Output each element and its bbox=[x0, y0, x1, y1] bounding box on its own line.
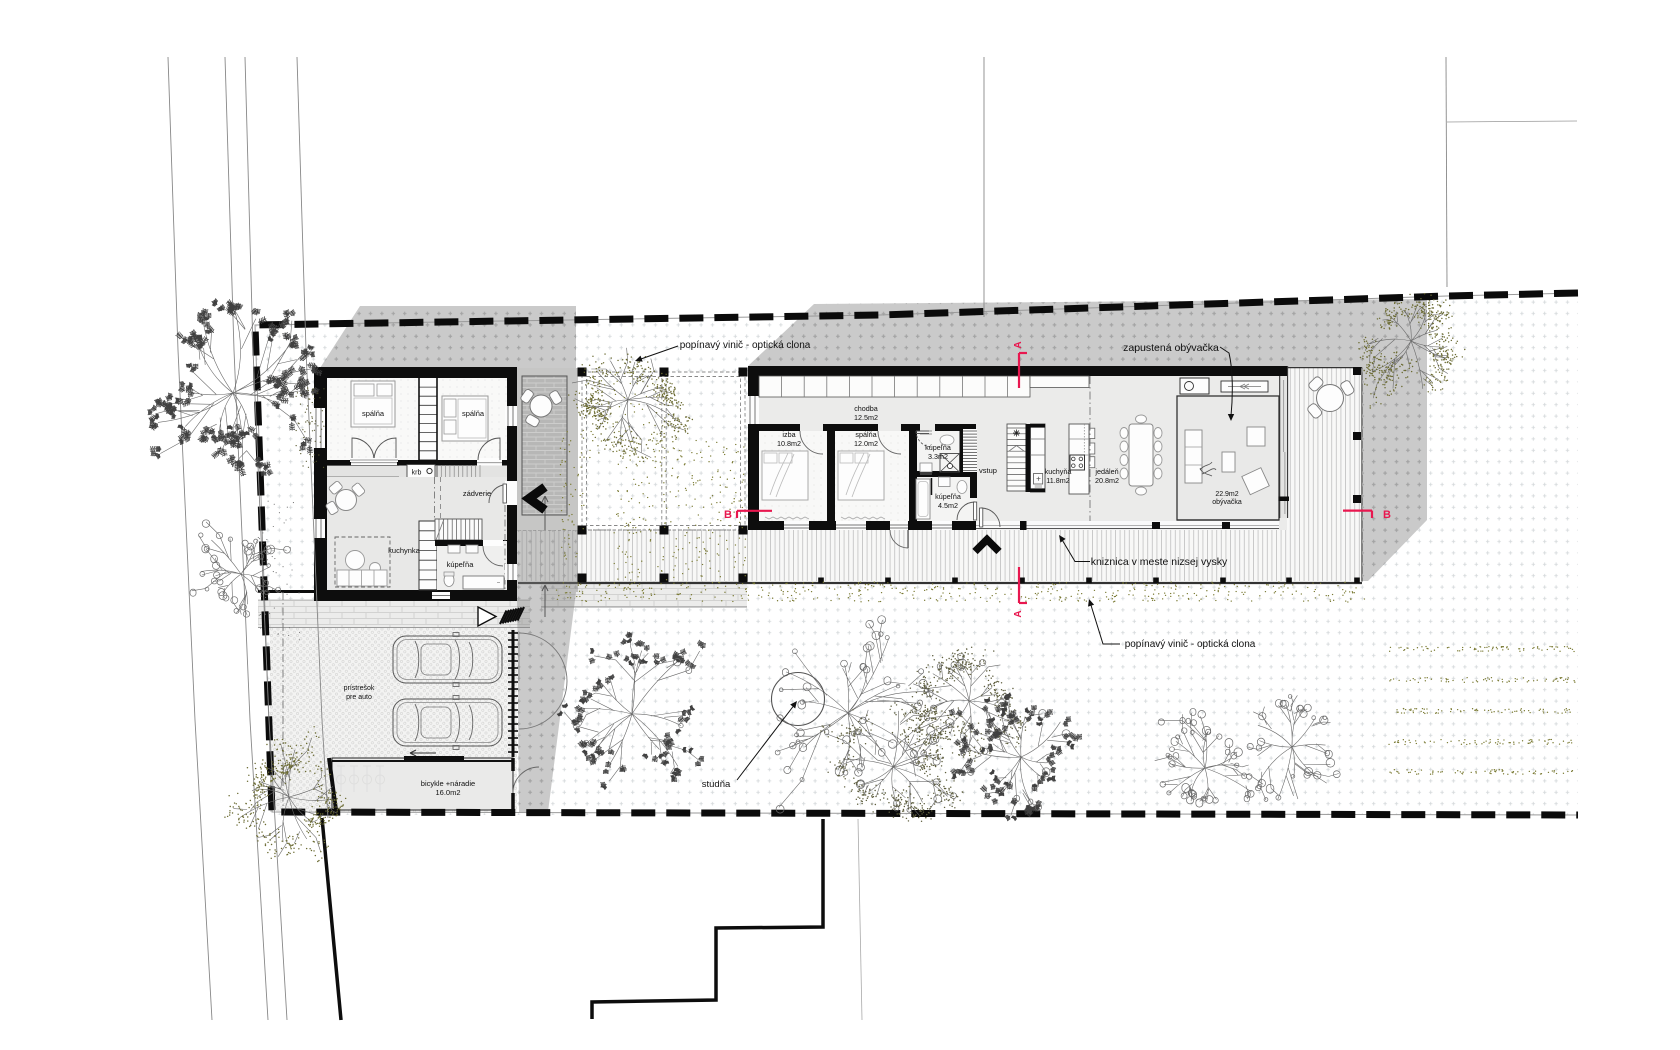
svg-text:studňa: studňa bbox=[702, 779, 731, 790]
svg-text:popínavý vinič - optická clona: popínavý vinič - optická clona bbox=[1125, 639, 1256, 650]
svg-text:zádverie: zádverie bbox=[463, 489, 491, 498]
svg-text:jedáleň: jedáleň bbox=[1094, 467, 1118, 476]
svg-text:kuchynka: kuchynka bbox=[388, 546, 421, 555]
svg-text:pre auto: pre auto bbox=[346, 694, 372, 701]
svg-text:4.5m2: 4.5m2 bbox=[938, 501, 958, 510]
svg-text:3.3m2: 3.3m2 bbox=[928, 452, 948, 461]
svg-text:spálňa: spálňa bbox=[462, 409, 485, 418]
svg-text:krb: krb bbox=[412, 470, 422, 477]
svg-text:A: A bbox=[1013, 610, 1024, 617]
svg-text:B: B bbox=[724, 509, 732, 521]
svg-text:prístrešok: prístrešok bbox=[344, 685, 375, 692]
svg-text:obývačka: obývačka bbox=[1212, 499, 1242, 506]
svg-text:kúpeľňa: kúpeľňa bbox=[447, 560, 475, 569]
svg-text:kuchyňa: kuchyňa bbox=[1045, 467, 1072, 476]
svg-text:A: A bbox=[1013, 341, 1024, 348]
svg-text:zapustená obývačka: zapustená obývačka bbox=[1123, 342, 1219, 354]
svg-text:kniznica v meste nizsej vysky: kniznica v meste nizsej vysky bbox=[1091, 556, 1228, 568]
svg-text:16.0m2: 16.0m2 bbox=[435, 788, 460, 797]
svg-text:chodba: chodba bbox=[854, 404, 878, 413]
svg-text:kúpeľňa: kúpeľňa bbox=[935, 492, 961, 501]
svg-text:11.8m2: 11.8m2 bbox=[1046, 476, 1069, 485]
svg-text:12.0m2: 12.0m2 bbox=[854, 439, 878, 448]
svg-text:22.9m2: 22.9m2 bbox=[1215, 491, 1238, 498]
svg-text:vstup: vstup bbox=[979, 466, 997, 475]
svg-text:12.5m2: 12.5m2 bbox=[854, 413, 878, 422]
svg-text:B: B bbox=[1383, 509, 1391, 521]
svg-text:spálňa: spálňa bbox=[855, 430, 876, 439]
svg-text:20.8m2: 20.8m2 bbox=[1095, 476, 1119, 485]
svg-text:10.8m2: 10.8m2 bbox=[777, 439, 801, 448]
svg-text:izba: izba bbox=[782, 430, 795, 439]
svg-text:spálňa: spálňa bbox=[362, 409, 385, 418]
svg-text:popínavý vinič - optická clona: popínavý vinič - optická clona bbox=[680, 340, 811, 351]
svg-text:kúpeľňa: kúpeľňa bbox=[925, 443, 951, 452]
svg-text:bicykle +náradie: bicykle +náradie bbox=[421, 779, 475, 788]
